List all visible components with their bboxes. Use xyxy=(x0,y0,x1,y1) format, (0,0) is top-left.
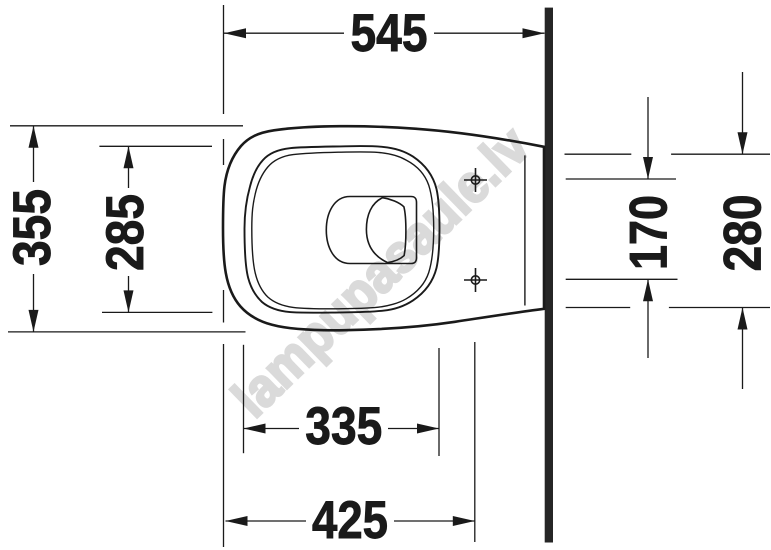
svg-text:170: 170 xyxy=(620,195,679,270)
svg-text:545: 545 xyxy=(351,4,428,63)
svg-text:335: 335 xyxy=(305,397,382,456)
svg-text:355: 355 xyxy=(3,189,62,266)
svg-text:280: 280 xyxy=(714,195,771,272)
svg-text:425: 425 xyxy=(312,491,388,550)
svg-text:285: 285 xyxy=(96,194,155,271)
